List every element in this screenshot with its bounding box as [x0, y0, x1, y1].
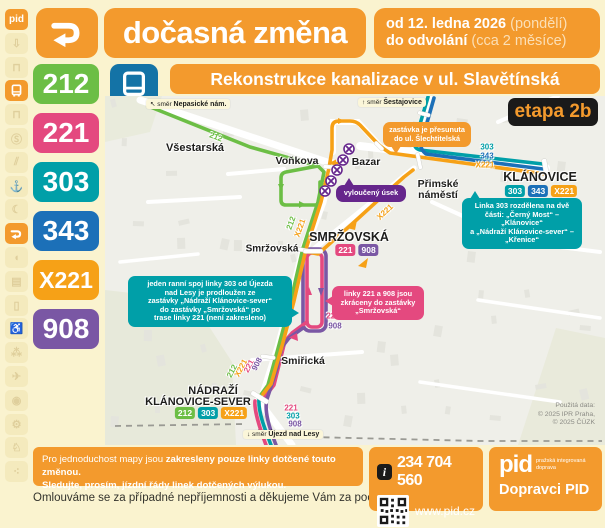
phone-number: 234 704 560	[397, 454, 475, 490]
bus-icon	[5, 80, 28, 101]
line-badge-221: 221	[33, 113, 99, 153]
detour-route-icon	[5, 223, 28, 244]
line-badge-303: 303	[33, 162, 99, 202]
validity-dates: od 12. ledna 2026 (pondělí)do odvolání (…	[374, 8, 600, 58]
validity-line: do odvolání (cca 2 měsíce)	[386, 33, 600, 50]
validity-line: od 12. ledna 2026 (pondělí)	[386, 16, 600, 33]
poster-title: dočasná změna	[104, 8, 366, 58]
detour-zigzag-icon	[36, 8, 98, 58]
family-icon: ⁂	[5, 342, 28, 363]
line-badge-343: 343	[33, 211, 99, 251]
stage-badge: etapa 2b	[508, 98, 598, 126]
pid-tagline: pražská integrovanádoprava	[536, 458, 586, 471]
dog-icon: ♘	[5, 437, 28, 458]
funicular-icon: ⫽	[5, 152, 28, 173]
detour-arrow-icon: ⇩	[5, 33, 28, 54]
footprints-icon: ⁖	[5, 461, 28, 482]
line-badge-X221: X221	[33, 260, 99, 300]
construction-banner: Rekonstrukce kanalizace v ul. Slavětínsk…	[170, 64, 600, 94]
line-badge-212: 212	[33, 64, 99, 104]
plane-icon: ✈	[5, 366, 28, 387]
route-map	[105, 96, 605, 445]
pid-logo: pid	[5, 9, 28, 30]
bike-icon: ⚙	[5, 414, 28, 435]
operators-label: Dopravci PID	[499, 482, 592, 498]
ferry-icon: ⚓	[5, 176, 28, 197]
trolleybus-icon: ⊓	[5, 104, 28, 125]
contact-box: i 234 704 560 www.pid.cz	[369, 447, 483, 511]
money-icon: ▤	[5, 271, 28, 292]
pid-logo: pid	[499, 454, 532, 476]
pid-brand-box: pid pražská integrovanádoprava Dopravci …	[489, 447, 602, 511]
train-icon: Ⓢ	[5, 128, 28, 149]
info-icon: i	[377, 464, 392, 480]
pid-change-poster: { "colors":{"orange":"#F39A2D","green":"…	[0, 0, 605, 516]
megaphone-icon: ◖	[5, 247, 28, 268]
wheelchair-icon: ♿	[5, 318, 28, 339]
phone-icon: ▯	[5, 295, 28, 316]
night-icon: ☾	[5, 199, 28, 220]
tram-icon: ⊓	[5, 57, 28, 78]
pram-icon: ◉	[5, 390, 28, 411]
footer-note: Pro jednoduchost mapy jsou zakresleny po…	[33, 447, 363, 486]
apology-text: Omlouváme se za případné nepříjemnosti a…	[33, 492, 411, 504]
qr-code[interactable]	[377, 494, 409, 528]
line-badge-908: 908	[33, 309, 99, 349]
